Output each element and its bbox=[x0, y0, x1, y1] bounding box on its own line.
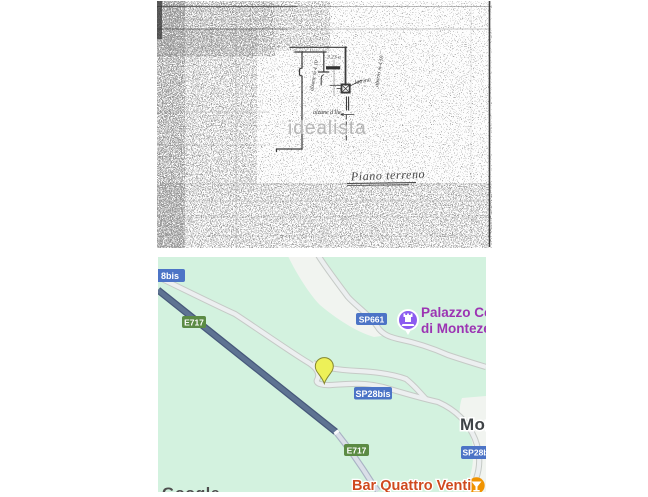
svg-text:SP28b: SP28b bbox=[463, 448, 487, 458]
svg-text:di Monteze: di Monteze bbox=[421, 321, 486, 336]
svg-text:SP661: SP661 bbox=[359, 315, 385, 325]
svg-text:8bis: 8bis bbox=[161, 271, 179, 281]
svg-text:E717: E717 bbox=[184, 318, 204, 328]
svg-text:alzane d'lla: alzane d'lla bbox=[313, 110, 341, 116]
svg-text:Mon: Mon bbox=[460, 415, 486, 434]
svg-text:Palazzo Co: Palazzo Co bbox=[421, 305, 486, 320]
svg-text:SP28bis: SP28bis bbox=[355, 389, 390, 399]
svg-text:idealista: idealista bbox=[288, 118, 367, 139]
svg-text:Google: Google bbox=[162, 486, 220, 493]
svg-text:Piano terreno: Piano terreno bbox=[350, 167, 426, 184]
svg-text:3.23 a: 3.23 a bbox=[326, 55, 341, 61]
svg-text:Bar Quattro Venti: Bar Quattro Venti bbox=[352, 478, 471, 492]
svg-text:E717: E717 bbox=[347, 446, 367, 456]
